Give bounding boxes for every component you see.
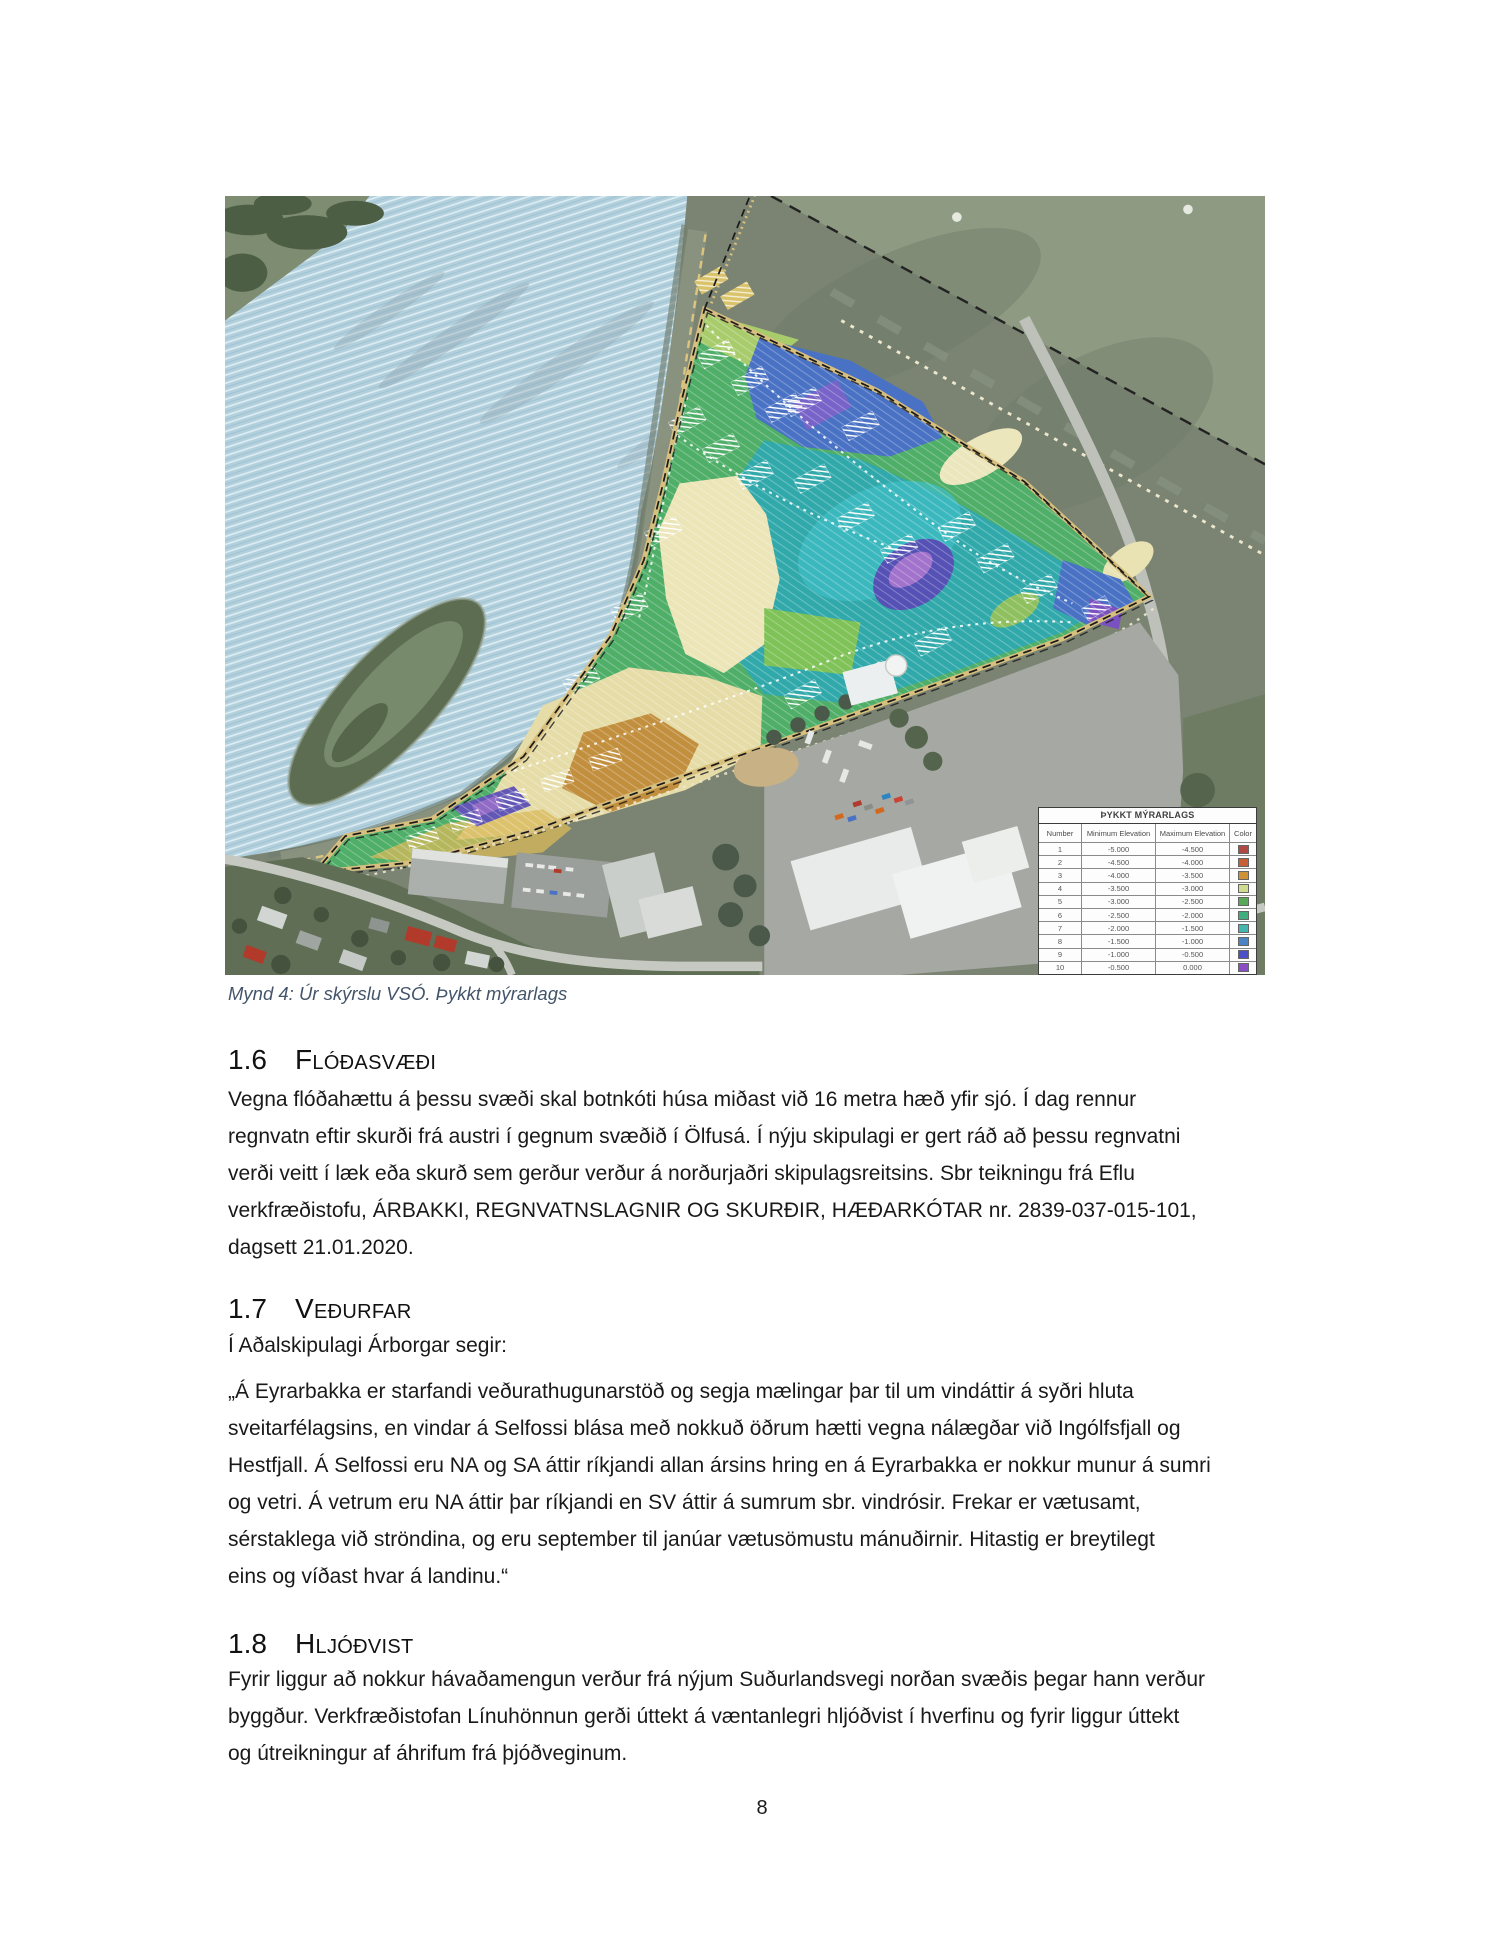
map-figure: ÞYKKT MÝRARLAGS Number Minimum Elevation…	[225, 196, 1265, 975]
heading-title: Flóðasvæði	[295, 1044, 436, 1075]
legend-color-swatch	[1238, 950, 1249, 959]
legend-row: 3 -4.000 -3.500	[1039, 868, 1256, 881]
legend-color-swatch	[1238, 871, 1249, 880]
heading-title: Hljóðvist	[295, 1628, 414, 1659]
legend-row: 10 -0.500 0.000	[1039, 961, 1256, 974]
legend-row: 7 -2.000 -1.500	[1039, 921, 1256, 934]
heading-title: Veðurfar	[295, 1293, 412, 1324]
heading-flodasvaedi: 1.6Flóðasvæði	[228, 1044, 436, 1076]
page-number: 8	[228, 1797, 1296, 1820]
legend-header-row: Number Minimum Elevation Maximum Elevati…	[1039, 824, 1256, 842]
legend-row: 6 -2.500 -2.000	[1039, 908, 1256, 921]
heading-hljodvist: 1.8Hljóðvist	[228, 1628, 414, 1660]
legend-color-swatch	[1238, 884, 1249, 893]
legend-row: 8 -1.500 -1.000	[1039, 934, 1256, 947]
legend-title: ÞYKKT MÝRARLAGS	[1039, 808, 1256, 824]
figure-caption: Mynd 4: Úr skýrslu VSÓ. Þykkt mýrarlags	[228, 983, 1298, 1005]
paragraph-hljodvist: Fyrir liggur að nokkur hávaðamengun verð…	[228, 1661, 1323, 1772]
heading-number: 1.6	[228, 1044, 272, 1076]
legend-row: 4 -3.500 -3.000	[1039, 882, 1256, 895]
paragraph-vedurfar-intro: Í Aðalskipulagi Árborgar segir:	[228, 1327, 1323, 1364]
legend-table: ÞYKKT MÝRARLAGS Number Minimum Elevation…	[1038, 807, 1257, 975]
legend-color-swatch	[1238, 924, 1249, 933]
legend-color-swatch	[1238, 845, 1249, 854]
legend-color-swatch	[1238, 963, 1249, 972]
storage-dome	[886, 655, 907, 676]
paragraph-flodasvaedi: Vegna flóðahættu á þessu svæði skal botn…	[228, 1081, 1323, 1266]
heading-number: 1.7	[228, 1293, 272, 1325]
legend-row: 2 -4.500 -4.000	[1039, 855, 1256, 868]
legend-color-swatch	[1238, 937, 1249, 946]
heading-vedurfar: 1.7Veðurfar	[228, 1293, 412, 1325]
heading-number: 1.8	[228, 1628, 272, 1660]
paragraph-vedurfar-quote: „Á Eyrarbakka er starfandi veðurathuguna…	[228, 1373, 1323, 1595]
legend-row: 9 -1.000 -0.500	[1039, 948, 1256, 961]
legend-row: 1 -5.000 -4.500	[1039, 842, 1256, 855]
parking-lot	[511, 852, 613, 917]
legend-color-swatch	[1238, 911, 1249, 920]
document-page: ÞYKKT MÝRARLAGS Number Minimum Elevation…	[0, 0, 1500, 1942]
legend-row: 5 -3.000 -2.500	[1039, 895, 1256, 908]
legend-color-swatch	[1238, 858, 1249, 867]
legend-color-swatch	[1238, 897, 1249, 906]
